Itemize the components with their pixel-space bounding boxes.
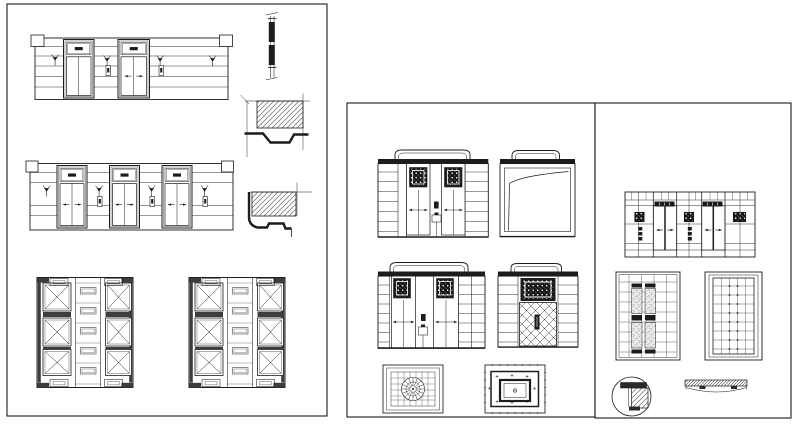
cab-door-lattice xyxy=(498,264,578,348)
granite-panel xyxy=(616,272,680,360)
ceiling-plan-sunburst xyxy=(383,365,443,413)
cab-elevation-b xyxy=(378,263,485,349)
elevator-shaft-plan-a xyxy=(37,278,133,388)
cab-elevation-a xyxy=(378,150,488,237)
cad-drawing-sheet xyxy=(0,0,800,424)
elevator-shaft-plan-b xyxy=(189,278,285,388)
door-jamb-section xyxy=(266,13,279,81)
cad-canvas xyxy=(0,0,800,424)
framed-panel xyxy=(705,272,762,360)
hall-elevation-double-door xyxy=(625,192,755,257)
cab-side-view xyxy=(500,151,575,237)
cove-ceiling-detail xyxy=(685,380,747,392)
ceiling-plan-coffer xyxy=(484,364,546,414)
trim-section-detail xyxy=(612,377,651,416)
wall-section-detail-a xyxy=(241,94,311,158)
hall-elevation-two-doors xyxy=(31,35,233,100)
hall-elevation-three-doors xyxy=(26,161,234,230)
wall-section-detail-b xyxy=(249,183,312,238)
